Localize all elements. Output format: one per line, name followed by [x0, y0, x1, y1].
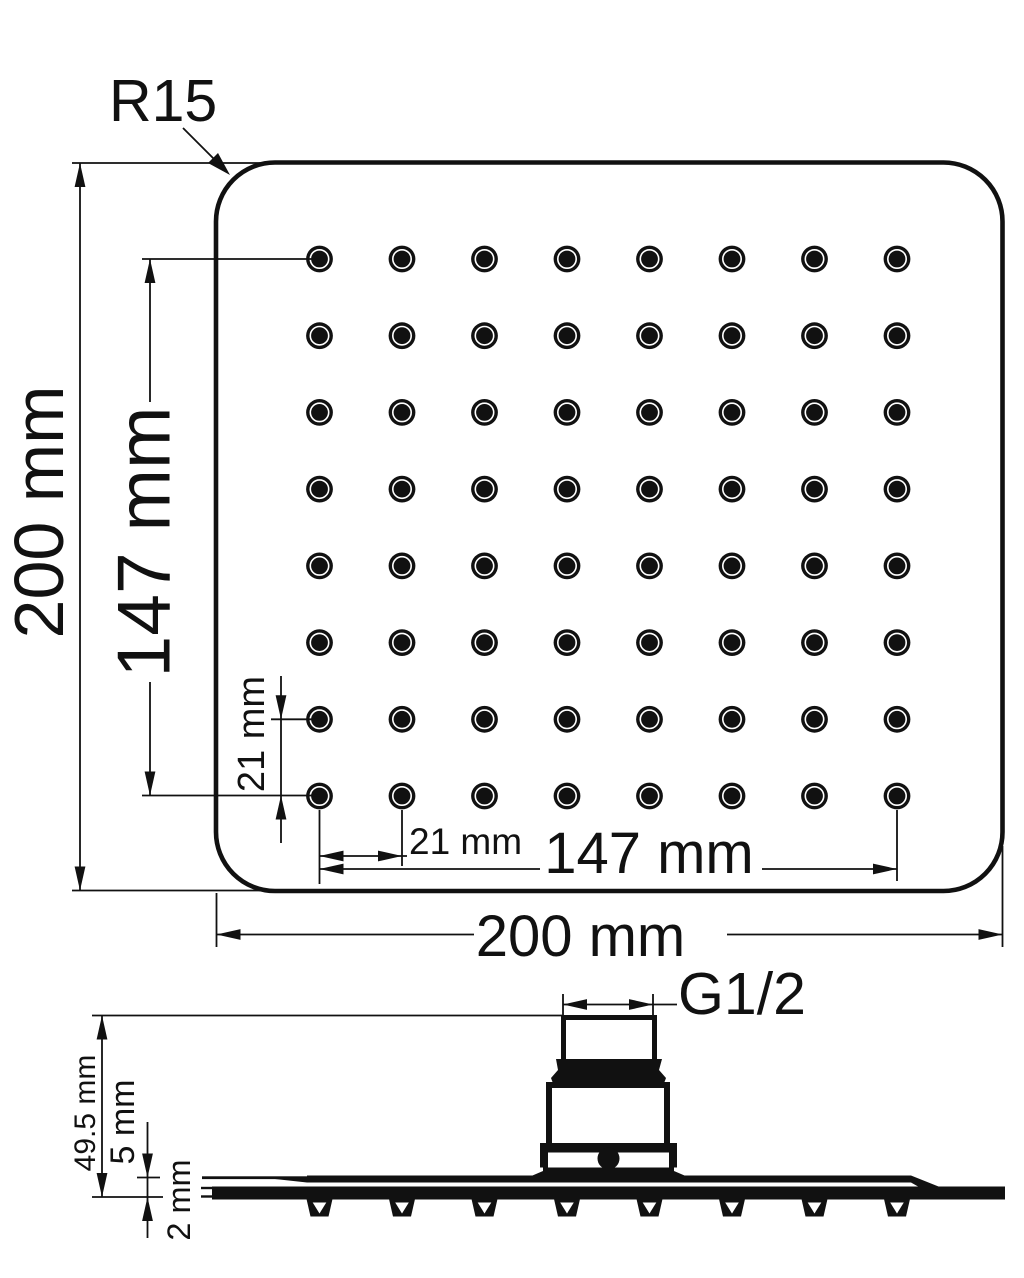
svg-text:R15: R15: [109, 68, 217, 134]
svg-text:49.5 mm: 49.5 mm: [69, 1055, 102, 1172]
svg-text:200 mm: 200 mm: [476, 904, 686, 969]
svg-text:21 mm: 21 mm: [409, 821, 522, 862]
svg-text:2 mm: 2 mm: [161, 1159, 197, 1240]
svg-text:147 mm: 147 mm: [102, 407, 186, 678]
svg-text:21 mm: 21 mm: [231, 676, 273, 792]
svg-text:147 mm: 147 mm: [544, 821, 754, 886]
svg-text:G1/2: G1/2: [678, 961, 806, 1027]
svg-text:200 mm: 200 mm: [0, 386, 78, 639]
svg-text:5 mm: 5 mm: [104, 1080, 142, 1165]
